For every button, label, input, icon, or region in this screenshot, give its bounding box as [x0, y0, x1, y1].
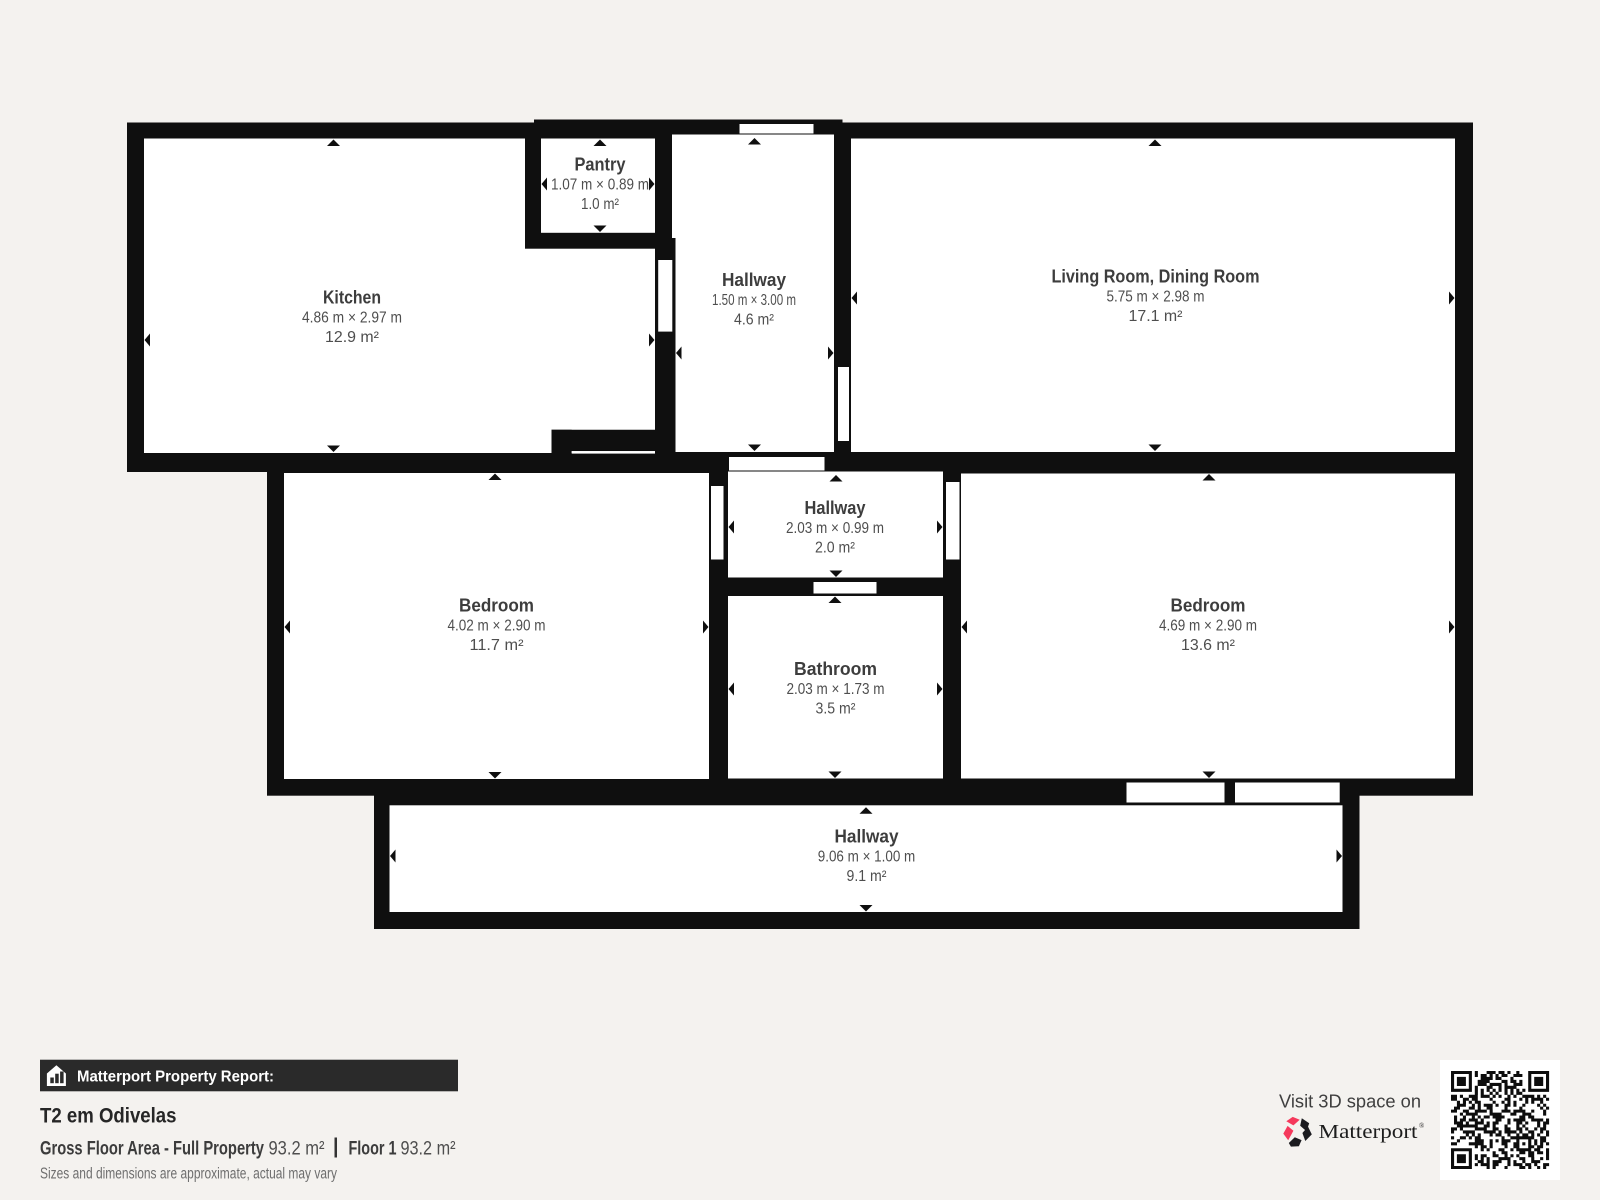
svg-text:4.69 m × 2.90 m: 4.69 m × 2.90 m — [1159, 618, 1257, 635]
svg-text:Hallway: Hallway — [805, 498, 867, 518]
svg-text:11.7 m²: 11.7 m² — [470, 637, 524, 654]
svg-text:Visit 3D space on: Visit 3D space on — [1279, 1092, 1421, 1112]
svg-text:2.03 m × 1.73 m: 2.03 m × 1.73 m — [787, 681, 885, 698]
svg-text:Kitchen: Kitchen — [323, 288, 381, 308]
svg-text:Sizes and dimensions are appro: Sizes and dimensions are approximate, ac… — [40, 1166, 337, 1183]
svg-text:13.6 m²: 13.6 m² — [1181, 637, 1235, 654]
svg-text:12.9 m²: 12.9 m² — [325, 329, 379, 346]
svg-text:Matterport Property Report:: Matterport Property Report: — [77, 1069, 274, 1086]
svg-text:4.02 m × 2.90 m: 4.02 m × 2.90 m — [448, 618, 546, 635]
svg-text:1.07 m × 0.89 m: 1.07 m × 0.89 m — [551, 177, 649, 194]
svg-text:Hallway: Hallway — [722, 270, 787, 290]
svg-text:Floor 1: Floor 1 — [349, 1138, 397, 1160]
svg-text:93.2 m²: 93.2 m² — [401, 1138, 456, 1160]
svg-text:5.75 m × 2.98 m: 5.75 m × 2.98 m — [1107, 289, 1205, 306]
svg-text:Matterport: Matterport — [1319, 1121, 1418, 1143]
svg-text:Bedroom: Bedroom — [459, 596, 534, 616]
svg-text:Gross Floor Area - Full Proper: Gross Floor Area - Full Property — [40, 1138, 264, 1160]
svg-text:9.06 m × 1.00 m: 9.06 m × 1.00 m — [818, 849, 916, 866]
svg-text:4.6 m²: 4.6 m² — [734, 312, 774, 329]
svg-text:Living Room, Dining Room: Living Room, Dining Room — [1052, 267, 1260, 287]
svg-text:3.5 m²: 3.5 m² — [816, 701, 856, 718]
svg-text:Pantry: Pantry — [575, 155, 627, 175]
svg-text:1.0 m²: 1.0 m² — [581, 196, 619, 213]
svg-text:®: ® — [1419, 1122, 1425, 1130]
svg-text:Bedroom: Bedroom — [1171, 596, 1246, 616]
svg-text:17.1 m²: 17.1 m² — [1129, 308, 1183, 325]
svg-text:4.86 m × 2.97 m: 4.86 m × 2.97 m — [302, 310, 402, 327]
svg-text:2.0 m²: 2.0 m² — [815, 540, 855, 557]
svg-text:T2 em Odivelas: T2 em Odivelas — [40, 1105, 177, 1128]
svg-text:1.50 m × 3.00 m: 1.50 m × 3.00 m — [712, 292, 796, 309]
svg-text:Bathroom: Bathroom — [794, 659, 877, 679]
svg-text:2.03 m × 0.99 m: 2.03 m × 0.99 m — [786, 520, 884, 537]
svg-text:Hallway: Hallway — [835, 827, 900, 847]
svg-text:9.1 m²: 9.1 m² — [847, 868, 887, 885]
svg-text:93.2 m²: 93.2 m² — [269, 1138, 325, 1160]
